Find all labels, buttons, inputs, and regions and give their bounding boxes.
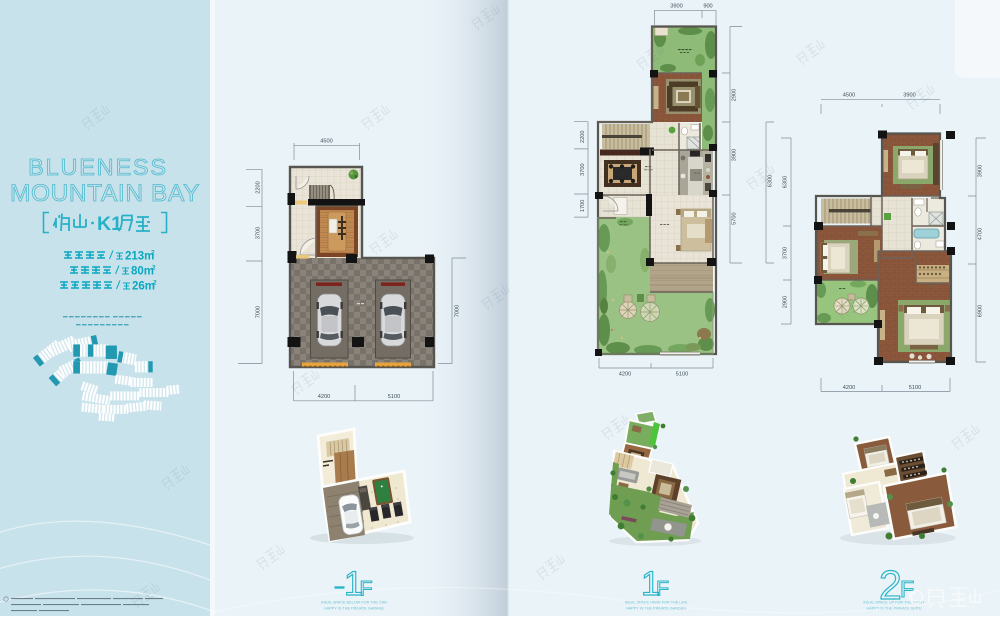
svg-text:213m: 213m bbox=[125, 251, 154, 263]
svg-text:4700: 4700 bbox=[978, 228, 984, 240]
svg-text:MOUNTAIN BAY: MOUNTAIN BAY bbox=[10, 180, 200, 207]
svg-text:5100: 5100 bbox=[388, 394, 400, 400]
svg-text:7000: 7000 bbox=[455, 305, 461, 317]
svg-text:6300: 6300 bbox=[768, 175, 774, 187]
svg-text:3900: 3900 bbox=[978, 165, 984, 177]
svg-text:4500: 4500 bbox=[843, 93, 855, 99]
svg-text:HAPPY IS THE PRIVATE GARAGE: HAPPY IS THE PRIVATE GARAGE bbox=[324, 606, 385, 610]
svg-text:4500: 4500 bbox=[320, 139, 332, 145]
svg-text:3700: 3700 bbox=[256, 227, 262, 239]
svg-text:900: 900 bbox=[703, 4, 712, 10]
svg-text:2900: 2900 bbox=[732, 89, 738, 101]
svg-text:F: F bbox=[360, 576, 373, 600]
svg-text:IDEAL SPACE BELOW FOR THE CAR: IDEAL SPACE BELOW FOR THE CAR bbox=[321, 601, 387, 605]
svg-text:4200: 4200 bbox=[318, 394, 330, 400]
svg-text:6300: 6300 bbox=[783, 176, 789, 188]
svg-text:HAPPY IS THE PRIVATE SUITE: HAPPY IS THE PRIVATE SUITE bbox=[867, 606, 922, 610]
svg-text:2: 2 bbox=[153, 280, 157, 287]
svg-text:5100: 5100 bbox=[676, 372, 688, 378]
svg-text:5700: 5700 bbox=[732, 212, 738, 224]
svg-text:3900: 3900 bbox=[732, 149, 738, 161]
svg-text:3700: 3700 bbox=[580, 163, 586, 175]
svg-text:2900: 2900 bbox=[783, 296, 789, 308]
svg-text:80m: 80m bbox=[131, 266, 154, 278]
svg-text:K1: K1 bbox=[97, 213, 122, 235]
svg-text:1700: 1700 bbox=[580, 200, 586, 212]
svg-text:2200: 2200 bbox=[256, 181, 262, 193]
svg-text:2: 2 bbox=[152, 265, 156, 272]
svg-text:3900: 3900 bbox=[903, 93, 915, 99]
svg-text:5100: 5100 bbox=[909, 385, 921, 391]
svg-text:26m: 26m bbox=[132, 281, 155, 293]
svg-text:3700: 3700 bbox=[783, 247, 789, 259]
svg-text:6900: 6900 bbox=[978, 305, 984, 317]
svg-text:4200: 4200 bbox=[619, 372, 631, 378]
svg-text:2: 2 bbox=[151, 250, 155, 257]
svg-text:BLUENESS: BLUENESS bbox=[28, 154, 168, 180]
svg-text:HAPPY IS THE PRIVATE GARDEN: HAPPY IS THE PRIVATE GARDEN bbox=[626, 606, 686, 610]
svg-text:F: F bbox=[656, 576, 669, 600]
svg-text:3900: 3900 bbox=[670, 4, 682, 10]
svg-text:7000: 7000 bbox=[256, 306, 262, 318]
svg-text:IDEAL SPACE HERE FOR THE LIFE: IDEAL SPACE HERE FOR THE LIFE bbox=[625, 601, 688, 605]
svg-text:4200: 4200 bbox=[843, 385, 855, 391]
svg-text:2200: 2200 bbox=[580, 131, 586, 143]
